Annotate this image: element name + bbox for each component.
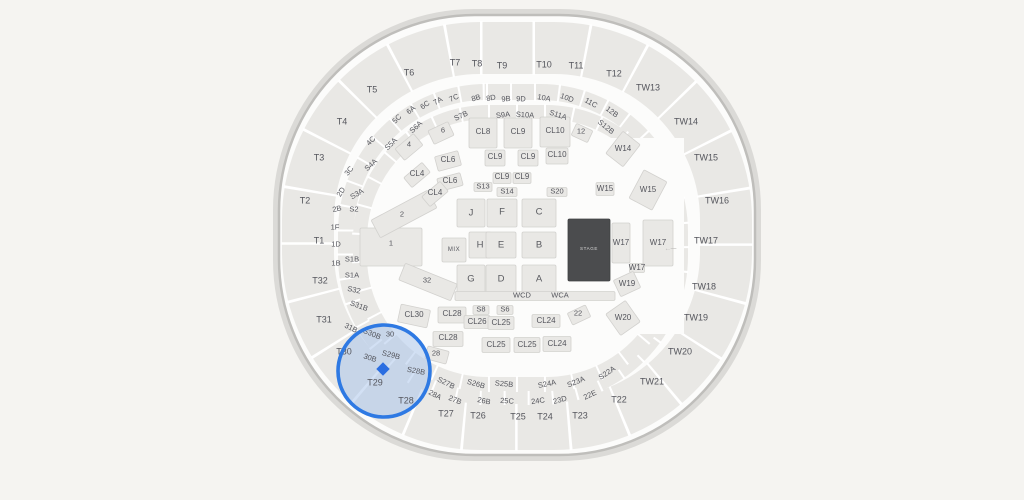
section-label-s1a[interactable]: S1A [345, 271, 359, 279]
section-label-s14[interactable]: S14 [500, 187, 513, 195]
section-label-t29[interactable]: T29 [367, 379, 383, 388]
section-label-w17[interactable]: W17 [613, 239, 629, 247]
section-label-t28[interactable]: T28 [398, 397, 414, 406]
section-label-tw21[interactable]: TW21 [640, 378, 664, 387]
section-label-tw14[interactable]: TW14 [674, 118, 698, 127]
section-label-tw20[interactable]: TW20 [668, 348, 692, 357]
section-label-8d[interactable]: 8D [486, 93, 497, 102]
section-label-t5[interactable]: T5 [367, 86, 378, 95]
stage-label: STAGE [580, 247, 598, 252]
section-label-b[interactable]: B [536, 240, 542, 250]
section-label-9b[interactable]: 9B [501, 95, 511, 103]
section-label-f[interactable]: F [499, 207, 505, 217]
section-label-a[interactable]: A [536, 274, 542, 284]
section-label-tw17[interactable]: TW17 [694, 237, 718, 246]
section-block[interactable] [455, 292, 615, 301]
arena-seating-map: T1T2T3T4T5T6T7T8T9T10T11T12TW13TW14TW15T… [0, 0, 1024, 500]
section-label-cl10[interactable]: CL10 [547, 151, 566, 159]
section-label-wca[interactable]: WCA [551, 291, 569, 299]
section-label-cl8[interactable]: CL8 [476, 128, 491, 136]
section-label-w20[interactable]: W20 [615, 314, 631, 322]
section-label-t31[interactable]: T31 [316, 316, 332, 325]
section-label-t4[interactable]: T4 [337, 118, 348, 127]
section-label-t6[interactable]: T6 [404, 69, 415, 78]
section-label-g[interactable]: G [467, 274, 474, 284]
section-label-tw13[interactable]: TW13 [636, 84, 660, 93]
section-label-4[interactable]: 4 [407, 140, 411, 148]
section-label-cl24[interactable]: CL24 [536, 317, 555, 325]
section-label-s13[interactable]: S13 [476, 182, 489, 190]
section-label-t22[interactable]: T22 [611, 396, 627, 405]
section-label-t27[interactable]: T27 [438, 410, 454, 419]
section-label-t26[interactable]: T26 [470, 412, 486, 421]
section-label-1f[interactable]: 1F [331, 223, 340, 231]
section-label-30[interactable]: 30 [386, 330, 394, 338]
section-label-28[interactable]: 28 [432, 349, 440, 357]
section-label-s20[interactable]: S20 [550, 187, 563, 195]
section-label-tw16[interactable]: TW16 [705, 197, 729, 206]
section-label-cl24[interactable]: CL24 [547, 340, 566, 348]
section-label-cl9[interactable]: CL9 [488, 153, 503, 161]
section-label-2b[interactable]: 2B [332, 204, 343, 213]
section-label-s6[interactable]: S6 [500, 305, 509, 313]
section-label-cl9[interactable]: CL9 [511, 128, 526, 136]
section-label-t7[interactable]: T7 [450, 59, 461, 68]
section-label-s1b[interactable]: S1B [345, 255, 359, 263]
section-label-t24[interactable]: T24 [537, 413, 553, 422]
section-label-t10[interactable]: T10 [536, 61, 552, 70]
section-label-cl4[interactable]: CL4 [428, 189, 443, 197]
section-label-t2[interactable]: T2 [300, 197, 311, 206]
section-label-j[interactable]: J [469, 208, 474, 218]
section-label-10a[interactable]: 10A [537, 93, 552, 103]
section-label-cl26[interactable]: CL26 [467, 318, 486, 326]
section-label-22[interactable]: 22 [574, 309, 582, 317]
section-label-tw19[interactable]: TW19 [684, 314, 708, 323]
section-label-w17[interactable]: W17 [629, 264, 645, 272]
section-label-2[interactable]: 2 [400, 210, 404, 218]
section-label-w15[interactable]: W15 [640, 186, 656, 194]
section-label-t23[interactable]: T23 [572, 412, 588, 421]
section-label-t32[interactable]: T32 [312, 277, 328, 286]
section-label-s9a[interactable]: S9A [496, 110, 511, 119]
entrance-arrow-icon: ←---- [664, 246, 675, 253]
section-label-32[interactable]: 32 [423, 276, 431, 284]
section-label-wcd[interactable]: WCD [513, 291, 531, 299]
section-label-cl25[interactable]: CL25 [491, 319, 510, 327]
section-label-cl10[interactable]: CL10 [545, 127, 564, 135]
section-label-cl4[interactable]: CL4 [410, 170, 425, 178]
section-label-s25b[interactable]: S25B [495, 379, 514, 388]
section-label-t12[interactable]: T12 [606, 70, 622, 79]
section-label-6[interactable]: 6 [441, 126, 445, 134]
section-label-cl28[interactable]: CL28 [442, 310, 461, 318]
section-label-cl25[interactable]: CL25 [517, 341, 536, 349]
section-label-9d[interactable]: 9D [516, 95, 526, 103]
section-label-12[interactable]: 12 [577, 127, 585, 135]
section-label-cl30[interactable]: CL30 [404, 311, 423, 319]
section-label-t25[interactable]: T25 [510, 413, 526, 422]
section-label-cl9[interactable]: CL9 [521, 153, 536, 161]
section-label-t1[interactable]: T1 [314, 237, 325, 246]
section-label-e[interactable]: E [498, 240, 504, 250]
section-label-d[interactable]: D [498, 274, 505, 284]
section-label-cl25[interactable]: CL25 [486, 341, 505, 349]
section-label-24c[interactable]: 24C [531, 396, 546, 405]
section-label-1b[interactable]: 1B [331, 259, 340, 267]
arena-base-layer [0, 0, 1024, 500]
section-label-tw18[interactable]: TW18 [692, 283, 716, 292]
section-label-1[interactable]: 1 [389, 239, 393, 247]
section-label-w15[interactable]: W15 [597, 185, 613, 193]
section-label-cl9[interactable]: CL9 [515, 173, 530, 181]
section-label-t11[interactable]: T11 [569, 62, 584, 71]
section-label-cl9[interactable]: CL9 [495, 173, 510, 181]
section-label-t3[interactable]: T3 [314, 154, 325, 163]
section-label-cl6[interactable]: CL6 [443, 177, 458, 185]
section-label-1d[interactable]: 1D [331, 240, 341, 248]
section-label-t9[interactable]: T9 [497, 62, 508, 71]
section-label-cl28[interactable]: CL28 [438, 334, 457, 342]
section-label-s8[interactable]: S8 [476, 305, 485, 313]
section-label-t30[interactable]: T30 [336, 348, 352, 357]
section-label-26b[interactable]: 26B [477, 396, 492, 406]
section-label-t8[interactable]: T8 [472, 60, 483, 69]
section-label-c[interactable]: C [536, 207, 543, 217]
section-label-25c[interactable]: 25C [500, 397, 514, 405]
section-label-w14[interactable]: W14 [615, 145, 631, 153]
section-label-s10a[interactable]: S10A [516, 111, 535, 120]
section-label-w19[interactable]: W19 [619, 280, 635, 288]
section-label-s2[interactable]: S2 [349, 205, 358, 213]
section-label-h[interactable]: H [477, 240, 484, 250]
section-label-tw15[interactable]: TW15 [694, 154, 718, 163]
section-label-cl6[interactable]: CL6 [441, 156, 456, 164]
section-label-mix[interactable]: MIX [448, 247, 460, 253]
